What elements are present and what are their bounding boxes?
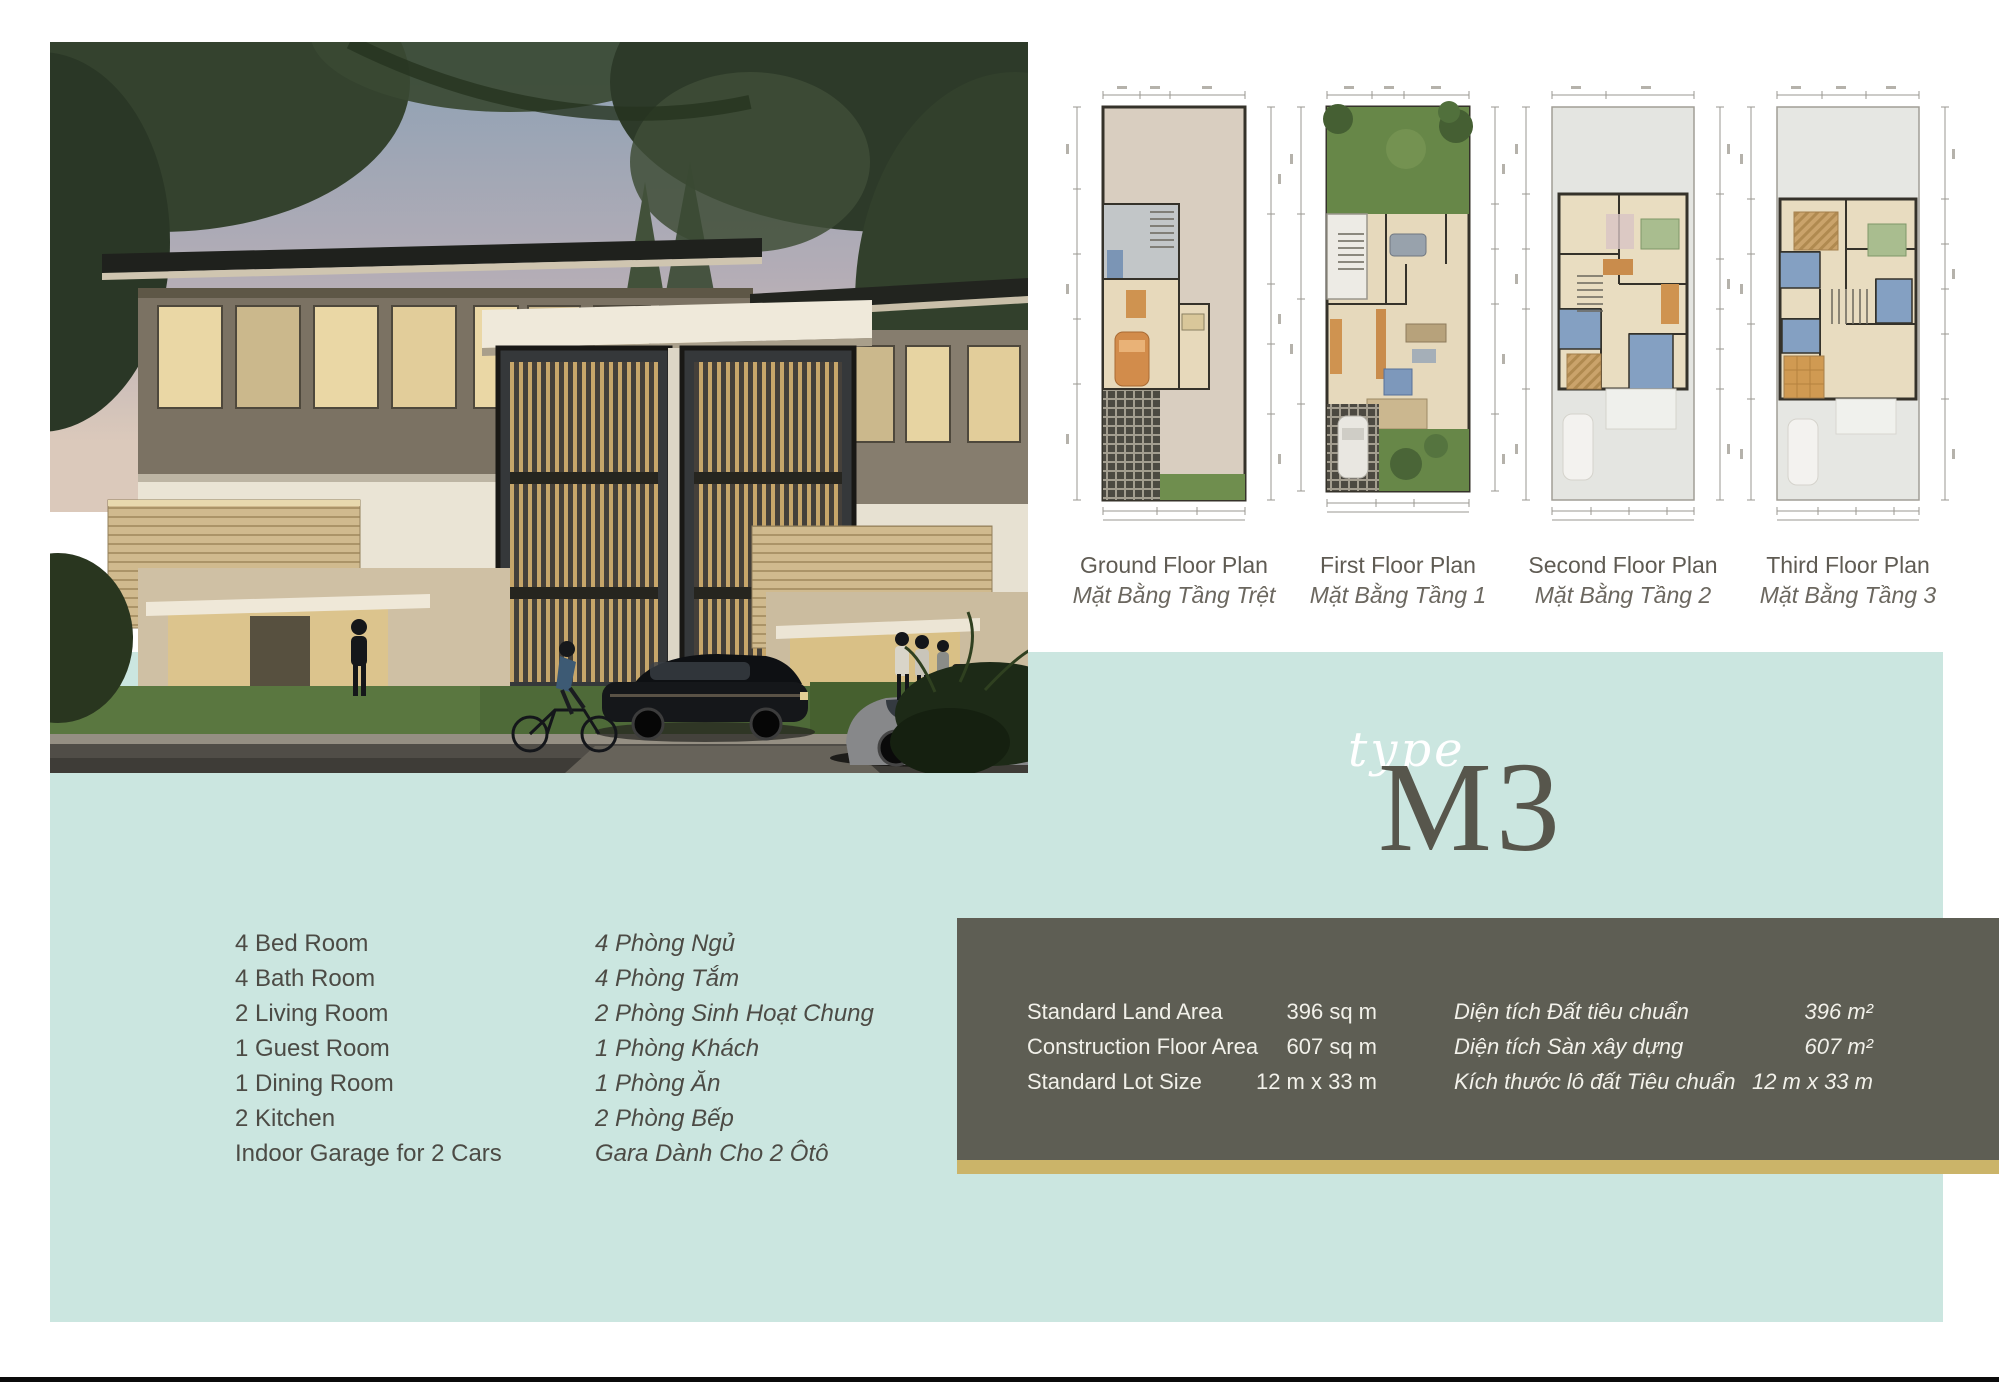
feature-vi: 4 Phòng Ngủ <box>595 926 735 961</box>
feature-vi: 1 Phòng Khách <box>595 1031 759 1066</box>
spec-value-vi: 396 m² <box>1677 994 1873 1029</box>
caption-ground-floor: Ground Floor Plan Mặt Bằng Tầng Trệt <box>1062 550 1286 610</box>
brochure-page: Ground Floor Plan Mặt Bằng Tầng Trệt Fir… <box>0 0 1999 1382</box>
feature-en: 4 Bed Room <box>235 926 368 961</box>
floor-plan-first <box>1286 84 1510 532</box>
feature-row: 2 Kitchen 2 Phòng Bếp <box>235 1101 955 1136</box>
spec-row-land-area: Standard Land Area 396 sq m Diện tích Đấ… <box>957 994 1999 1029</box>
spec-value-en: 12 m x 33 m <box>1207 1064 1377 1099</box>
spec-label-en: Standard Lot Size <box>1027 1064 1202 1099</box>
feature-row: 1 Dining Room 1 Phòng Ăn <box>235 1066 955 1101</box>
caption-title: Second Floor Plan <box>1511 550 1735 580</box>
caption-title: Third Floor Plan <box>1736 550 1960 580</box>
spec-row-lot-size: Standard Lot Size 12 m x 33 m Kích thước… <box>957 1064 1999 1099</box>
floor-plan-ground <box>1062 84 1286 532</box>
spec-row-floor-area: Construction Floor Area 607 sq m Diện tí… <box>957 1029 1999 1064</box>
spec-value-vi: 607 m² <box>1677 1029 1873 1064</box>
caption-first-floor: First Floor Plan Mặt Bằng Tầng 1 <box>1286 550 1510 610</box>
feature-vi: 1 Phòng Ăn <box>595 1066 720 1101</box>
caption-title: First Floor Plan <box>1286 550 1510 580</box>
caption-second-floor: Second Floor Plan Mặt Bằng Tầng 2 <box>1511 550 1735 610</box>
spec-label-vi: Diện tích Sàn xây dựng <box>1454 1029 1683 1064</box>
feature-row: 4 Bed Room 4 Phòng Ngủ <box>235 926 955 961</box>
spec-value-en: 396 sq m <box>1207 994 1377 1029</box>
house-photo <box>50 42 1028 773</box>
feature-list: 4 Bed Room 4 Phòng Ngủ 4 Bath Room 4 Phò… <box>235 926 955 1171</box>
feature-vi: 2 Phòng Sinh Hoạt Chung <box>595 996 874 1031</box>
feature-row: Indoor Garage for 2 Cars Gara Dành Cho 2… <box>235 1136 955 1171</box>
feature-en: Indoor Garage for 2 Cars <box>235 1136 502 1171</box>
feature-en: 2 Living Room <box>235 996 388 1031</box>
spec-label-en: Standard Land Area <box>1027 994 1223 1029</box>
caption-subtitle: Mặt Bằng Tầng Trệt <box>1062 580 1286 610</box>
caption-subtitle: Mặt Bằng Tầng 1 <box>1286 580 1510 610</box>
feature-en: 1 Dining Room <box>235 1066 394 1101</box>
feature-en: 2 Kitchen <box>235 1101 335 1136</box>
feature-vi: 4 Phòng Tắm <box>595 961 739 996</box>
gold-accent-stripe <box>957 1160 1999 1174</box>
caption-subtitle: Mặt Bằng Tầng 2 <box>1511 580 1735 610</box>
feature-en: 1 Guest Room <box>235 1031 390 1066</box>
caption-title: Ground Floor Plan <box>1062 550 1286 580</box>
floor-plan-second <box>1511 84 1735 532</box>
feature-en: 4 Bath Room <box>235 961 375 996</box>
page-bottom-edge <box>0 1377 1999 1382</box>
spec-value-vi: 12 m x 33 m <box>1677 1064 1873 1099</box>
feature-row: 2 Living Room 2 Phòng Sinh Hoạt Chung <box>235 996 955 1031</box>
feature-row: 4 Bath Room 4 Phòng Tắm <box>235 961 955 996</box>
spec-value-en: 607 sq m <box>1207 1029 1377 1064</box>
unit-type-code: M3 <box>1378 742 1564 872</box>
caption-subtitle: Mặt Bằng Tầng 3 <box>1736 580 1960 610</box>
spec-box: Standard Land Area 396 sq m Diện tích Đấ… <box>957 918 1999 1174</box>
spec-label-vi: Diện tích Đất tiêu chuẩn <box>1454 994 1689 1029</box>
feature-row: 1 Guest Room 1 Phòng Khách <box>235 1031 955 1066</box>
floor-plan-third <box>1736 84 1960 532</box>
feature-vi: 2 Phòng Bếp <box>595 1101 734 1136</box>
caption-third-floor: Third Floor Plan Mặt Bằng Tầng 3 <box>1736 550 1960 610</box>
feature-vi: Gara Dành Cho 2 Ôtô <box>595 1136 828 1171</box>
